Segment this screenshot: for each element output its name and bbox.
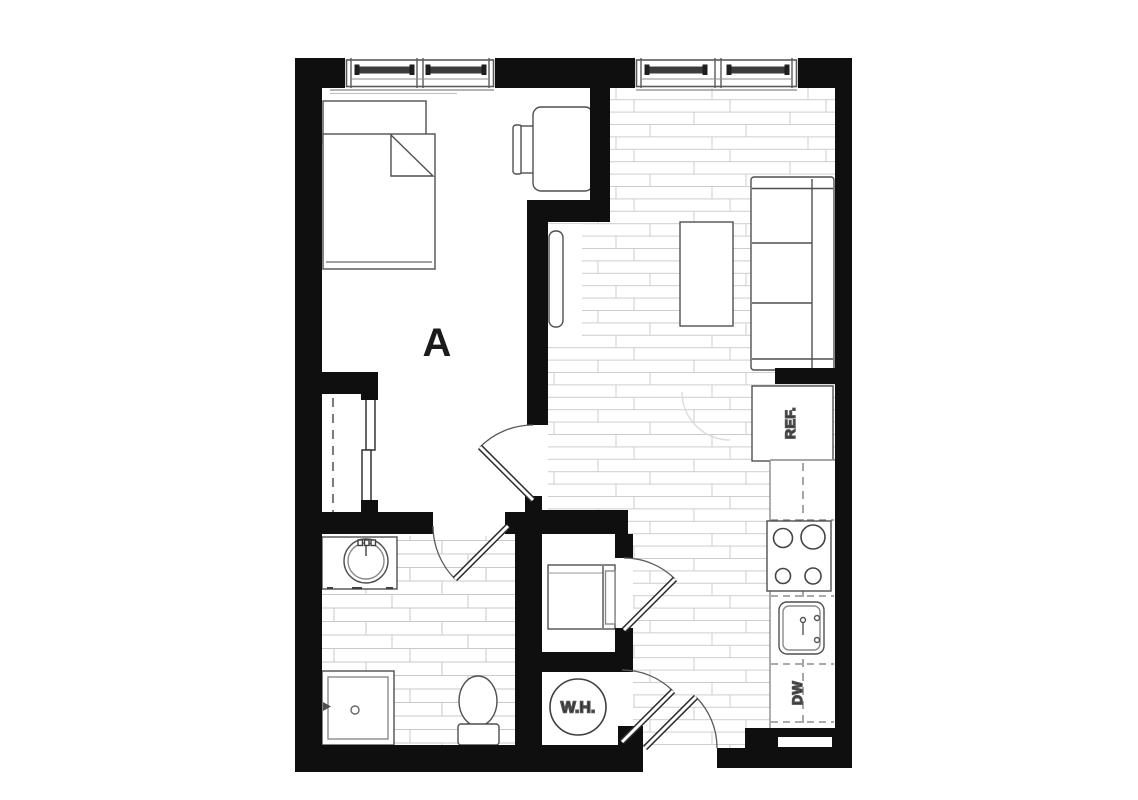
wall-exterior-left: [295, 58, 322, 772]
bed: [323, 101, 435, 269]
wall-wd-stub-lower: [615, 628, 633, 654]
floor-plan-canvas: REF.: [0, 0, 1138, 800]
refrigerator-label: REF.: [782, 407, 798, 439]
floor-plan-page: REF.: [0, 0, 1138, 800]
wall-hub-block: [505, 512, 542, 534]
wall-closet-cap-top: [361, 384, 378, 400]
wall-wd-closet-top: [542, 510, 628, 534]
window-glazing: [356, 67, 413, 74]
wall-wh-closet-top: [528, 652, 633, 672]
tv: [549, 231, 563, 327]
toilet-bowl: [459, 676, 497, 726]
wall-bedroom-living-lower: [527, 200, 548, 425]
bed-mattress: [323, 134, 435, 269]
refrigerator: REF.: [752, 386, 833, 461]
wall-vent-slot: [778, 737, 832, 747]
wall-exterior-right: [835, 58, 852, 768]
toilet: [458, 676, 499, 745]
sofa: [751, 177, 834, 370]
wall-closet-cap-bottom: [361, 500, 378, 514]
washer-dryer-panel: [606, 571, 616, 624]
water-heater-label: W.H.: [561, 700, 596, 717]
shower: [322, 671, 394, 745]
wall-top-middle: [495, 58, 635, 88]
window-living: [635, 58, 798, 90]
wall-bottom-left: [295, 745, 643, 772]
window-glazing: [646, 67, 706, 74]
unit-label: A: [423, 321, 452, 365]
wall-top-left-corner: [295, 58, 345, 88]
wall-wd-stub-upper: [615, 534, 633, 558]
water-heater: W.H.: [550, 679, 606, 735]
wall-bathroom-top: [322, 512, 433, 534]
coffee-table: [680, 222, 733, 326]
shower-drain: [351, 706, 359, 714]
tv-console: [544, 224, 582, 336]
closet-slider-panel-1: [366, 398, 375, 450]
desk: [533, 107, 593, 191]
dishwasher-label: DW: [789, 681, 805, 706]
kitchen-counter: DW: [767, 460, 835, 728]
cooktop: [767, 521, 831, 591]
wall-ref-nook-stub: [775, 368, 852, 384]
washer-dryer: [548, 565, 615, 629]
wall-bottom-right: [745, 728, 852, 768]
bathroom-vanity: [322, 537, 397, 589]
wall-central-vertical: [515, 534, 542, 745]
kitchen-sink: [779, 602, 824, 654]
closet-slider-panel-2: [362, 450, 371, 502]
toilet-tank: [458, 724, 499, 745]
sofa-outline: [751, 177, 834, 370]
